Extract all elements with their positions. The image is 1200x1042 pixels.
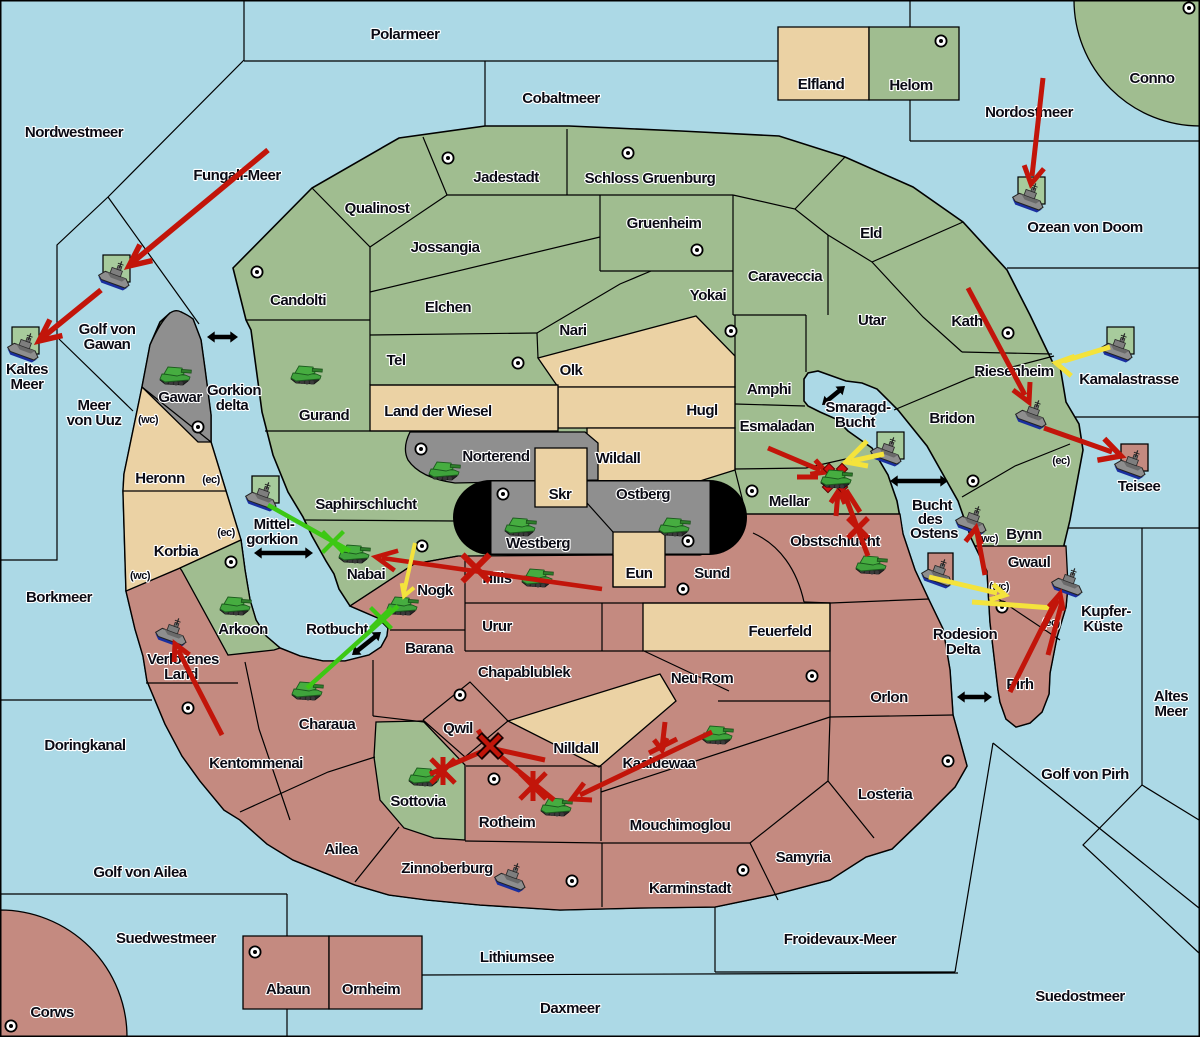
- svg-text:gorkion: gorkion: [246, 531, 298, 548]
- svg-text:von Uuz: von Uuz: [67, 412, 122, 429]
- svg-text:Corws: Corws: [30, 1004, 74, 1021]
- svg-text:Skr: Skr: [549, 486, 572, 503]
- svg-text:Gwaul: Gwaul: [1008, 554, 1051, 571]
- svg-text:Utar: Utar: [858, 312, 887, 329]
- svg-text:Gawan: Gawan: [84, 336, 131, 353]
- svg-text:Eld: Eld: [860, 225, 882, 242]
- svg-text:Teisee: Teisee: [1118, 478, 1161, 495]
- svg-text:Gruenheim: Gruenheim: [627, 215, 702, 232]
- svg-text:(ec): (ec): [202, 474, 220, 486]
- svg-text:Eun: Eun: [626, 565, 653, 582]
- svg-text:Conno: Conno: [1130, 70, 1175, 87]
- svg-text:delta: delta: [216, 397, 250, 414]
- svg-text:Caraveccia: Caraveccia: [748, 268, 823, 285]
- svg-text:Hugl: Hugl: [686, 402, 718, 419]
- svg-text:Lithiumsee: Lithiumsee: [480, 949, 554, 966]
- svg-text:Bridon: Bridon: [929, 410, 975, 427]
- svg-text:Karminstadt: Karminstadt: [649, 880, 732, 897]
- svg-text:Qualinost: Qualinost: [345, 200, 410, 217]
- svg-text:Olk: Olk: [560, 362, 584, 379]
- svg-text:Nilldall: Nilldall: [553, 740, 599, 757]
- svg-text:Helom: Helom: [889, 77, 933, 94]
- svg-text:Elchen: Elchen: [425, 299, 472, 316]
- svg-text:Abaun: Abaun: [266, 981, 311, 998]
- svg-text:Saphirschlucht: Saphirschlucht: [315, 496, 417, 513]
- svg-text:Gawar: Gawar: [158, 389, 202, 406]
- svg-text:Nabai: Nabai: [347, 566, 386, 583]
- svg-text:Tel: Tel: [386, 352, 405, 369]
- svg-text:Bynn: Bynn: [1006, 526, 1042, 543]
- svg-text:Samyria: Samyria: [776, 849, 832, 866]
- svg-text:(ec): (ec): [1052, 455, 1070, 467]
- svg-text:Charaua: Charaua: [299, 716, 357, 733]
- svg-text:Neu Rom: Neu Rom: [671, 670, 734, 687]
- svg-text:Candolti: Candolti: [270, 292, 326, 309]
- svg-text:Qwil: Qwil: [443, 720, 473, 737]
- svg-text:Kentommenai: Kentommenai: [209, 755, 303, 772]
- svg-text:Esmaladan: Esmaladan: [740, 418, 815, 435]
- svg-text:Urur: Urur: [482, 618, 512, 635]
- svg-text:Kamalastrasse: Kamalastrasse: [1079, 371, 1179, 388]
- svg-text:Sottovia: Sottovia: [390, 793, 446, 810]
- svg-text:Ozean von Doom: Ozean von Doom: [1027, 219, 1143, 236]
- svg-text:Delta: Delta: [946, 641, 981, 658]
- svg-text:Mouchimoglou: Mouchimoglou: [630, 817, 731, 834]
- svg-text:Jossangia: Jossangia: [411, 239, 481, 256]
- svg-text:Sund: Sund: [694, 565, 730, 582]
- svg-text:Nordwestmeer: Nordwestmeer: [25, 124, 124, 141]
- svg-text:Jadestadt: Jadestadt: [473, 169, 539, 186]
- svg-text:Golf von Ailea: Golf von Ailea: [93, 864, 187, 881]
- svg-text:Meer: Meer: [1154, 703, 1188, 720]
- svg-text:Zinnoberburg: Zinnoberburg: [401, 860, 493, 877]
- svg-text:Yokai: Yokai: [690, 287, 727, 304]
- svg-text:Bucht: Bucht: [835, 414, 876, 431]
- svg-text:Westberg: Westberg: [506, 535, 570, 552]
- svg-text:Orlon: Orlon: [870, 689, 908, 706]
- svg-text:Kath: Kath: [951, 313, 983, 330]
- svg-text:Amphi: Amphi: [747, 381, 791, 398]
- svg-text:Doringkanal: Doringkanal: [44, 737, 126, 754]
- svg-text:Borkmeer: Borkmeer: [26, 589, 93, 606]
- svg-text:(wc): (wc): [138, 414, 159, 426]
- svg-text:Wildall: Wildall: [596, 450, 641, 467]
- svg-text:Chapablublek: Chapablublek: [478, 664, 572, 681]
- svg-text:Arkoon: Arkoon: [218, 621, 268, 638]
- svg-text:Suedwestmeer: Suedwestmeer: [116, 930, 217, 947]
- svg-text:Mellar: Mellar: [769, 493, 810, 510]
- svg-text:Meer: Meer: [10, 376, 44, 393]
- svg-text:Land der Wiesel: Land der Wiesel: [384, 403, 492, 420]
- svg-text:(wc): (wc): [130, 570, 151, 582]
- svg-text:Barana: Barana: [405, 640, 454, 657]
- svg-text:(ec): (ec): [217, 527, 235, 539]
- svg-text:Cobaltmeer: Cobaltmeer: [522, 90, 600, 107]
- svg-text:Daxmeer: Daxmeer: [540, 1000, 601, 1017]
- svg-text:Suedostmeer: Suedostmeer: [1035, 988, 1125, 1005]
- svg-text:Heronn: Heronn: [135, 470, 185, 487]
- svg-text:Norterend: Norterend: [462, 448, 530, 465]
- svg-text:Feuerfeld: Feuerfeld: [748, 623, 811, 640]
- svg-text:Rotbucht: Rotbucht: [306, 621, 368, 638]
- svg-text:Golf von Pirh: Golf von Pirh: [1041, 766, 1129, 783]
- svg-text:Nordostmeer: Nordostmeer: [985, 104, 1074, 121]
- svg-text:Ornheim: Ornheim: [342, 981, 400, 998]
- svg-text:Polarmeer: Polarmeer: [371, 26, 441, 43]
- svg-text:Losteria: Losteria: [858, 786, 914, 803]
- svg-text:Küste: Küste: [1083, 618, 1122, 635]
- svg-text:Rotheim: Rotheim: [479, 814, 536, 831]
- svg-text:Korbia: Korbia: [154, 543, 200, 560]
- svg-text:Elfland: Elfland: [798, 76, 845, 93]
- svg-text:Nogk: Nogk: [417, 582, 454, 599]
- svg-text:Nari: Nari: [559, 322, 587, 339]
- svg-text:Ailea: Ailea: [324, 841, 359, 858]
- svg-text:Ostberg: Ostberg: [616, 486, 670, 503]
- svg-text:Schloss Gruenburg: Schloss Gruenburg: [585, 170, 716, 187]
- svg-text:Gurand: Gurand: [299, 407, 350, 424]
- svg-text:Ostens: Ostens: [910, 525, 958, 542]
- svg-text:Froidevaux-Meer: Froidevaux-Meer: [784, 931, 897, 948]
